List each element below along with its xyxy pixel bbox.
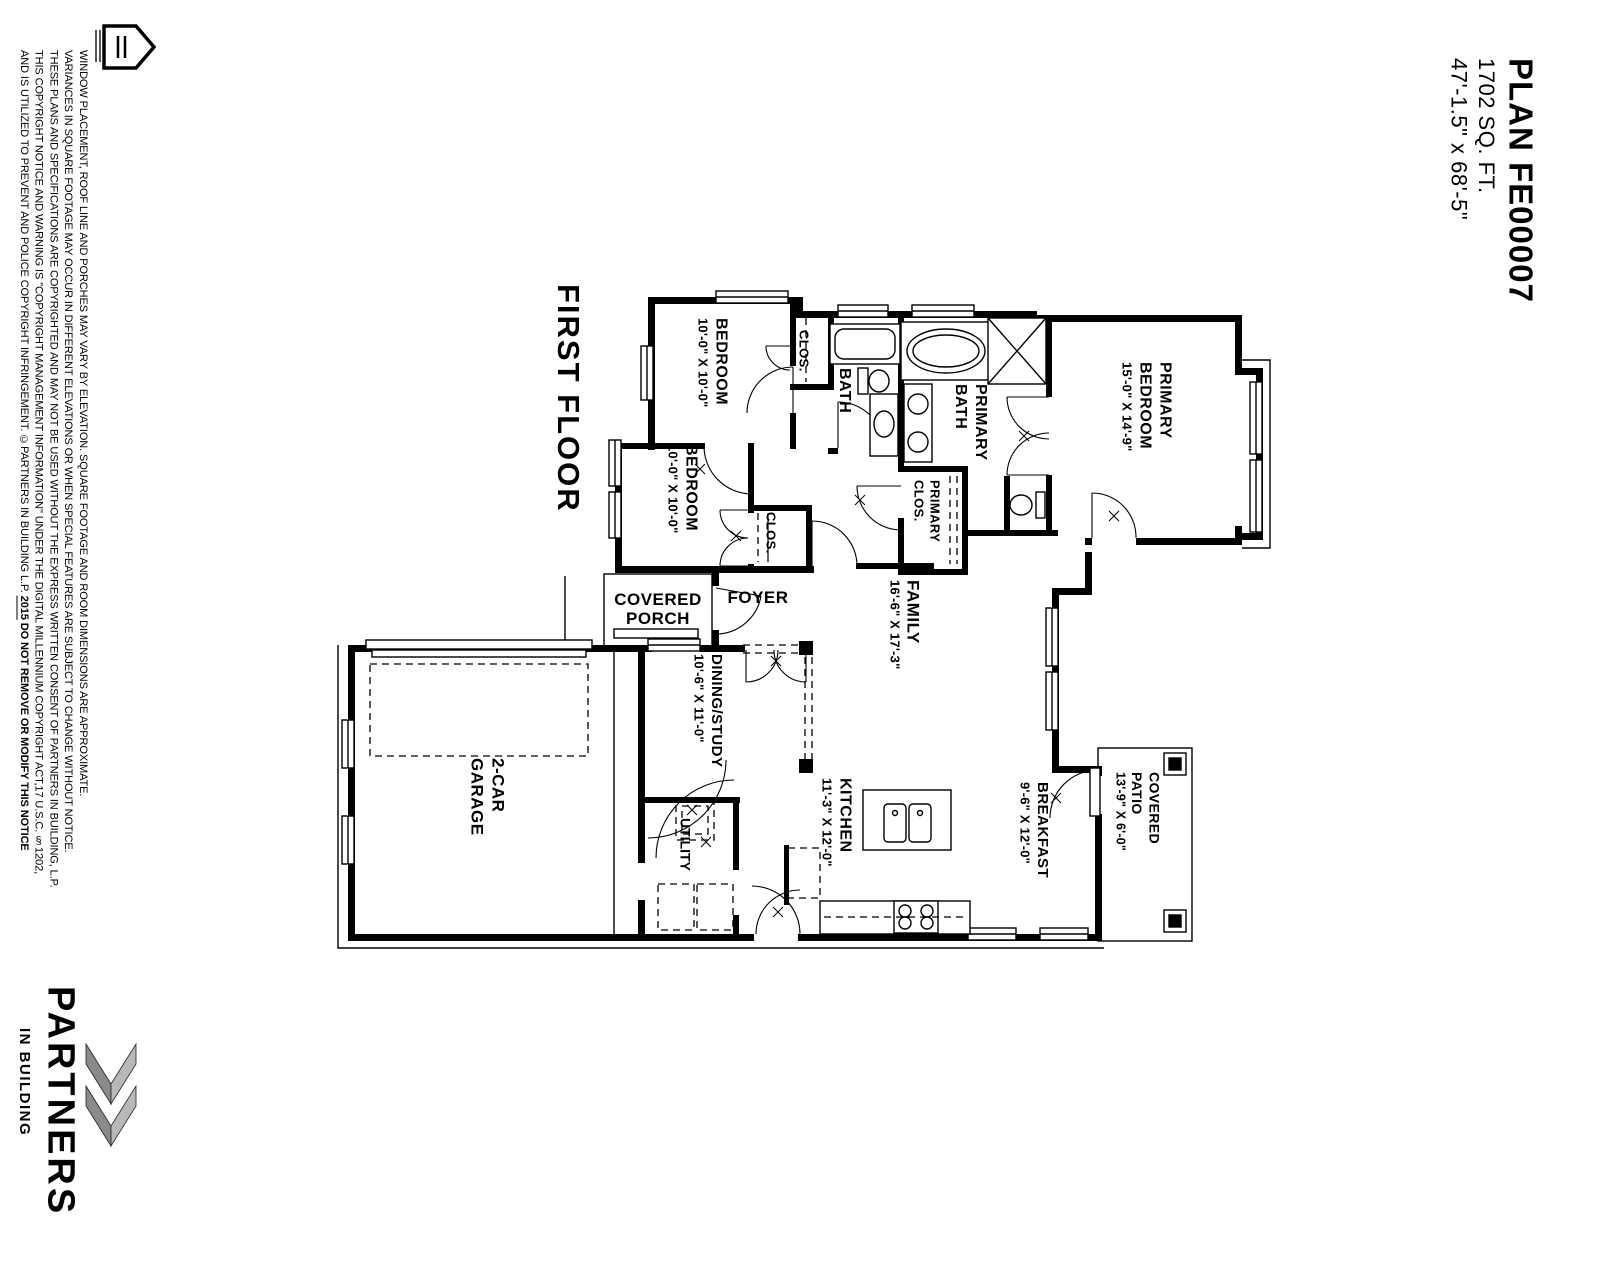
legal-line: THIS COPYRIGHT NOTICE AND WARNING IS "CO… <box>31 50 46 887</box>
floor-plan-drawing <box>0 0 1600 1280</box>
plan-footprint: 47'-1.5" x 68'-5" <box>1445 58 1473 303</box>
room-label-primary-bath: PRIMARY BATH <box>950 384 990 461</box>
kitchen-island <box>863 790 951 850</box>
title-block: PLAN FE00007 1702 SQ. FT. 47'-1.5" x 68'… <box>1445 58 1541 303</box>
plan-number: PLAN FE00007 <box>1500 58 1541 303</box>
garage-door <box>366 640 592 657</box>
copyright-year: 2015 <box>18 596 30 620</box>
logo-tagline: IN BUILDING <box>14 1028 33 1136</box>
toilet <box>858 368 889 394</box>
room-name: BREAKFAST <box>1032 782 1051 878</box>
room-dims: 10'-0" X 10'-0" <box>694 318 710 407</box>
room-name: COVERED <box>1145 772 1163 851</box>
primary-toilet <box>1010 492 1045 518</box>
room-name: DINING/STUDY <box>706 654 725 768</box>
room-name: COVERED <box>602 590 714 609</box>
room-label-kitchen: KITCHEN 11'-3" X 12'-0" <box>818 778 854 867</box>
legal-line: VARIANCES IN SQUARE FOOTAGE MAY OCCUR IN… <box>60 50 75 887</box>
shower <box>988 318 1046 384</box>
copyright-notice: WINDOW PLACEMENT, ROOF LINE AND PORCHES … <box>16 50 90 887</box>
room-name: PATIO <box>1128 772 1146 851</box>
room-dims: 10'-0" X 10'-0" <box>664 444 680 533</box>
legal-line: AND IS UTILIZED TO PREVENT AND POLICE CO… <box>16 50 31 887</box>
room-name: FAMILY <box>902 580 923 669</box>
legal-line: WINDOW PLACEMENT, ROOF LINE AND PORCHES … <box>75 50 90 887</box>
room-name: 2-CAR <box>487 758 508 836</box>
room-label-bath: BATH <box>834 368 854 413</box>
room-dims: 10'-6" X 11'-0" <box>690 654 706 768</box>
room-name: PRIMARY <box>970 384 990 461</box>
plan-area: 1702 SQ. FT. <box>1473 58 1501 303</box>
room-label-primary-closet: PRIMARY CLOS. <box>910 480 943 542</box>
room-name: PRIMARY <box>926 480 942 542</box>
patio-posts <box>1164 753 1186 932</box>
room-label-family: FAMILY 16'-6" X 17'-3" <box>886 580 924 669</box>
logo-chevron-icon <box>84 1042 138 1154</box>
room-name: CLOS. <box>910 480 926 542</box>
room-name: BEDROOM <box>710 318 730 407</box>
room-label-covered-porch: COVERED PORCH <box>602 590 714 628</box>
plan-sheet: FIRST FLOOR BEDROOM 10'-0" X 10'-0" BEDR… <box>0 0 1600 1280</box>
room-label-bedroom-1: BEDROOM 10'-0" X 10'-0" <box>694 318 730 407</box>
builder-house-icon <box>94 12 164 82</box>
room-label-covered-patio: COVERED PATIO 13'-9" X 6'-0" <box>1112 772 1163 851</box>
room-dims: 15'-0" X 14'-9" <box>1118 362 1134 451</box>
room-name: GARAGE <box>466 758 487 836</box>
room-label-primary-bedroom: PRIMARY BEDROOM 15'-0" X 14'-9" <box>1118 362 1174 451</box>
room-label-closet-1: CLOS. <box>795 330 811 372</box>
room-label-utility: UTILITY <box>676 818 694 871</box>
room-label-garage: 2-CAR GARAGE <box>466 758 509 836</box>
room-name: BATH <box>950 384 970 461</box>
room-name: BEDROOM <box>1134 362 1154 451</box>
room-dims: 13'-9" X 6'-0" <box>1112 772 1128 851</box>
room-label-closet-2: CLOS. <box>762 512 778 554</box>
legal-line: THESE PLANS AND SPECIFICATIONS ARE COPYR… <box>46 50 61 887</box>
do-not-remove-notice: DO NOT REMOVE OR MODIFY THIS NOTICE <box>18 623 30 851</box>
bathtub <box>830 324 900 364</box>
room-name: PRIMARY <box>1154 362 1174 451</box>
room-label-bedroom-2: BEDROOM 10'-0" X 10'-0" <box>664 444 700 533</box>
legal-line-start: AND IS UTILIZED TO PREVENT AND POLICE CO… <box>18 50 30 596</box>
room-dims: 9'-6" X 12'-0" <box>1016 782 1032 878</box>
logo-company-name: PARTNERS <box>36 986 84 1216</box>
vanity-sink <box>870 394 898 456</box>
room-label-dining-study: DINING/STUDY 10'-6" X 11'-0" <box>690 654 725 768</box>
room-label-foyer: FOYER <box>714 588 802 607</box>
room-dims: 16'-6" X 17'-3" <box>886 580 902 669</box>
room-name: BEDROOM <box>680 444 700 533</box>
room-name: PORCH <box>602 609 714 628</box>
room-name: KITCHEN <box>834 778 854 867</box>
room-dims: 11'-3" X 12'-0" <box>818 778 834 867</box>
double-vanity <box>904 384 932 462</box>
floor-title: FIRST FLOOR <box>548 284 587 513</box>
room-label-breakfast: BREAKFAST 9'-6" X 12'-0" <box>1016 782 1051 878</box>
garden-tub <box>901 322 991 380</box>
